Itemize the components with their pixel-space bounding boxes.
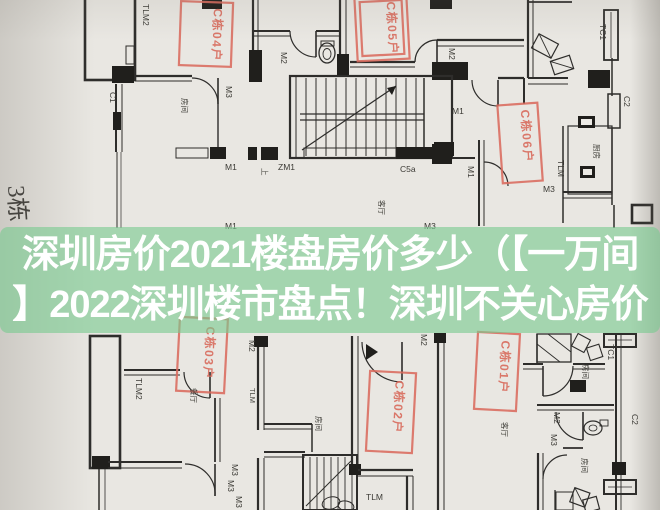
unit-stamp-c01: C栋01户 — [474, 332, 520, 411]
plan-label: M3 — [234, 496, 244, 508]
plan-label: TLM2 — [141, 4, 151, 26]
balcony-hatch-top — [85, 0, 135, 83]
article-cover-image: C栋04户 C栋05户 C栋06户 C栋03户 C栋02户 C栋01户 TLM2… — [0, 0, 660, 510]
plan-label: 厨房 — [592, 144, 602, 159]
plan-label: TLM — [248, 388, 257, 403]
article-title-line1: 深圳房价2021楼盘房价多少（【一万间 — [0, 230, 660, 280]
unit-stamp-c06-label: C栋06户 — [518, 109, 537, 163]
title-overlay-band: 深圳房价2021楼盘房价多少（【一万间 】2022深圳楼市盘点！深圳不关心房价 — [0, 227, 660, 333]
toilet-fixture-bottom — [584, 420, 608, 435]
unit-stamp-c02: C栋02户 — [366, 371, 416, 453]
plan-label: M2 — [279, 52, 289, 64]
plan-label: ZM1 — [278, 162, 295, 172]
plan-label: M1 — [452, 106, 464, 116]
handwritten-building-label: 3栋 — [2, 185, 31, 223]
plan-label: M2 — [247, 340, 257, 352]
plan-label: M3 — [549, 434, 559, 446]
toilet-fixture-top — [319, 41, 335, 63]
plan-label: M3 — [543, 184, 555, 194]
plan-label: M2 — [447, 48, 457, 60]
staircase-top — [290, 76, 452, 158]
plan-label: TLM2 — [134, 378, 144, 400]
plan-label: 房间 — [314, 416, 324, 431]
plan-label: TC1 — [598, 24, 608, 40]
unit-stamp-c05-label: C栋05户 — [384, 1, 402, 55]
balcony-hatch-bottom — [90, 336, 120, 469]
plan-label: 房间 — [580, 458, 590, 473]
plan-label: M2 — [419, 334, 429, 346]
plan-label: M1 — [225, 162, 237, 172]
unit-stamp-c04: C栋04户 — [179, 1, 233, 67]
plan-label: C2 — [630, 414, 640, 425]
unit-stamp-c05: C栋05户 — [354, 0, 409, 61]
plan-label: M3 — [226, 480, 236, 492]
plan-label: 房间 — [180, 98, 190, 113]
plan-label: M3 — [224, 86, 234, 98]
bath-fixtures-top — [532, 34, 574, 75]
plan-label: M2 — [552, 412, 562, 424]
plan-label: 上 — [260, 168, 269, 176]
unit-stamp-c03-label: C栋03户 — [201, 326, 219, 380]
kitchen-tiles-top — [568, 116, 612, 194]
plan-label: TLM — [556, 160, 566, 177]
plan-label: M1 — [466, 166, 476, 178]
plan-label: 房间 — [581, 364, 591, 379]
unit-stamp-c02-label: C栋02户 — [390, 380, 408, 434]
plan-label: TC1 — [606, 344, 616, 360]
plan-label: C2 — [622, 96, 632, 107]
shower-tiles-bottom — [556, 488, 600, 510]
plan-label: 餐厅 — [189, 388, 198, 403]
bedroom-bed — [537, 334, 603, 362]
plan-label: 客厅 — [500, 422, 510, 437]
plan-label: M3 — [230, 464, 240, 476]
unit-stamp-c06: C栋06户 — [497, 103, 542, 184]
plan-label: TLM — [366, 492, 383, 502]
plan-label: C5a — [400, 164, 416, 174]
unit-stamp-c01-label: C栋01户 — [496, 340, 514, 394]
staircase-bottom — [303, 455, 357, 510]
unit-stamp-c04-label: C栋04户 — [209, 8, 226, 62]
plan-label: C1 — [108, 92, 118, 103]
plan-label: 客厅 — [377, 200, 387, 215]
article-title-line2: 】2022深圳楼市盘点！深圳不关心房价 — [0, 280, 660, 330]
